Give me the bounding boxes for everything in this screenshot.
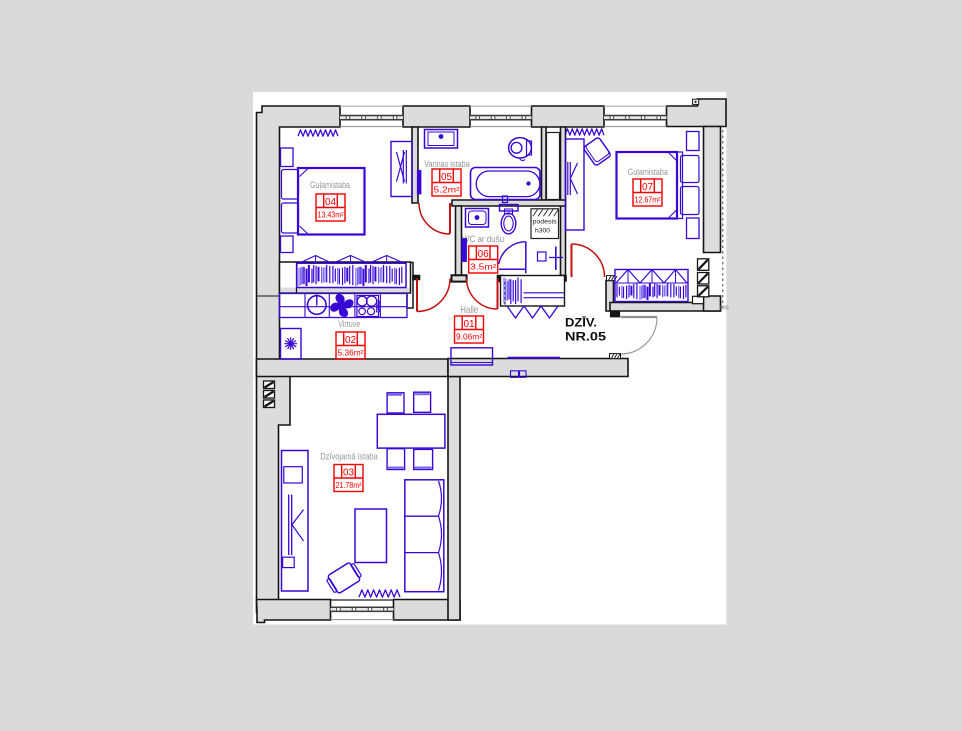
svg-text:21.78m²: 21.78m² bbox=[336, 481, 362, 490]
svg-text:podests: podests bbox=[533, 219, 558, 226]
svg-text:DZĪV.: DZĪV. bbox=[565, 316, 597, 330]
svg-text:06: 06 bbox=[478, 249, 490, 260]
svg-text:5.2m²: 5.2m² bbox=[434, 186, 460, 195]
svg-text:05: 05 bbox=[441, 172, 453, 183]
svg-text:Vannas istaba: Vannas istaba bbox=[424, 159, 470, 169]
svg-text:h300: h300 bbox=[535, 228, 550, 235]
svg-text:5.36m²: 5.36m² bbox=[338, 349, 364, 358]
svg-text:02: 02 bbox=[345, 335, 357, 346]
svg-text:NR.05: NR.05 bbox=[565, 330, 606, 344]
svg-text:Dzīvojamā istaba: Dzīvojamā istaba bbox=[320, 451, 378, 462]
svg-text:Halle: Halle bbox=[460, 304, 478, 316]
svg-text:Virtuve: Virtuve bbox=[338, 319, 360, 329]
svg-text:12.67m²: 12.67m² bbox=[635, 196, 661, 205]
svg-text:Guļamistaba: Guļamistaba bbox=[628, 167, 668, 177]
svg-text:03: 03 bbox=[343, 468, 355, 479]
svg-text:9.06m²: 9.06m² bbox=[456, 333, 482, 342]
svg-text:Guļamistaba: Guļamistaba bbox=[310, 180, 350, 190]
svg-text:01: 01 bbox=[463, 319, 475, 330]
svg-text:04: 04 bbox=[325, 197, 337, 208]
svg-text:3.5m²: 3.5m² bbox=[470, 263, 496, 272]
svg-text:13.43m²: 13.43m² bbox=[318, 211, 344, 220]
svg-text:WC ar dušu: WC ar dušu bbox=[462, 234, 504, 244]
svg-text:600: 600 bbox=[719, 306, 728, 312]
svg-text:07: 07 bbox=[642, 182, 654, 193]
